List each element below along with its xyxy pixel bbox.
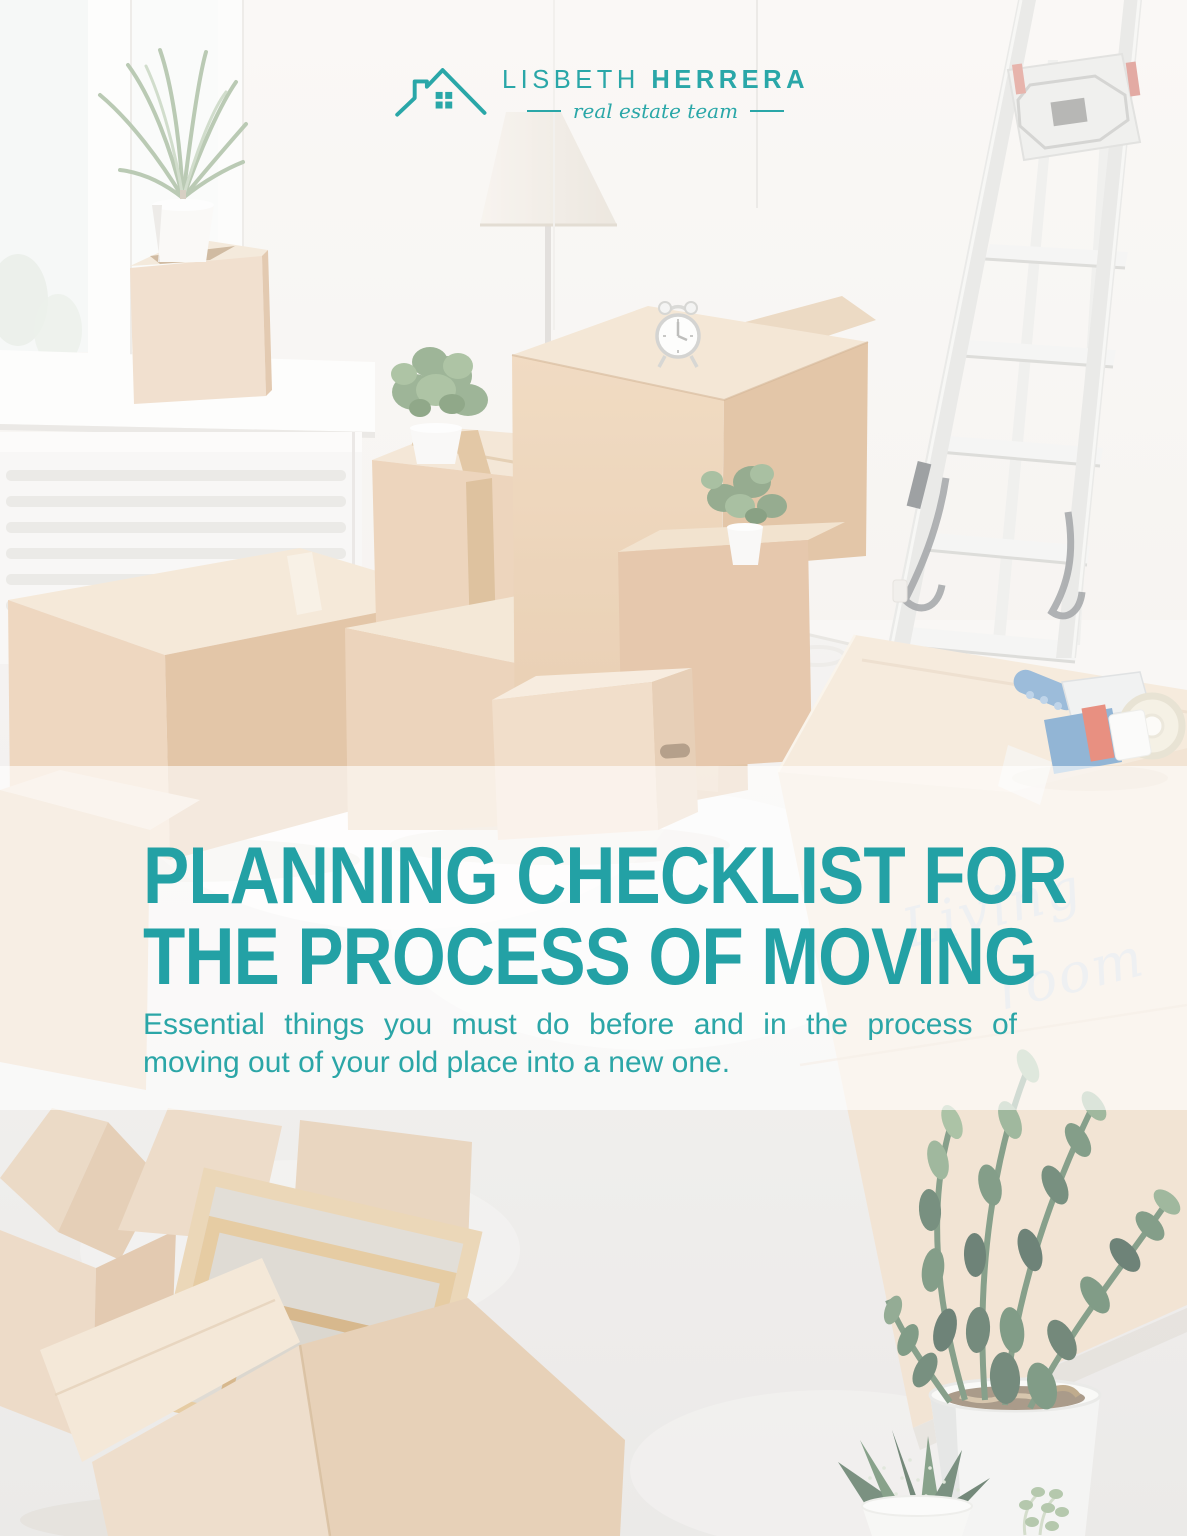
tagline-dash-left	[527, 110, 561, 112]
title-line-2: THE PROCESS OF MOVING	[143, 917, 1067, 998]
window-panes-icon	[436, 92, 453, 109]
subtitle-line-2: moving out of your old place into a new …	[143, 1044, 1017, 1082]
page-title: PLANNING CHECKLIST FOR THE PROCESS OF MO…	[143, 836, 1067, 998]
flyer-page: Living room	[0, 0, 1187, 1536]
sill-box	[130, 238, 272, 404]
brand-tagline: real estate team	[502, 99, 809, 123]
page-subtitle: Essential things you must do before and …	[143, 1006, 1017, 1081]
brand-name: LISBETH HERRERA	[502, 66, 809, 95]
brand-text: LISBETH HERRERA real estate team	[502, 54, 809, 123]
tagline-dash-right	[750, 110, 784, 112]
brand-logo: LISBETH HERRERA real estate team	[392, 54, 809, 123]
title-line-1: PLANNING CHECKLIST FOR	[143, 836, 1067, 917]
house-icon	[392, 54, 488, 122]
tagline-text: real estate team	[573, 99, 738, 123]
hero-block: PLANNING CHECKLIST FOR THE PROCESS OF MO…	[143, 836, 1187, 998]
brand-first-name: LISBETH	[502, 66, 640, 94]
subtitle-line-1: Essential things you must do before and …	[143, 1006, 1017, 1044]
brand-last-name: HERRERA	[651, 66, 809, 94]
